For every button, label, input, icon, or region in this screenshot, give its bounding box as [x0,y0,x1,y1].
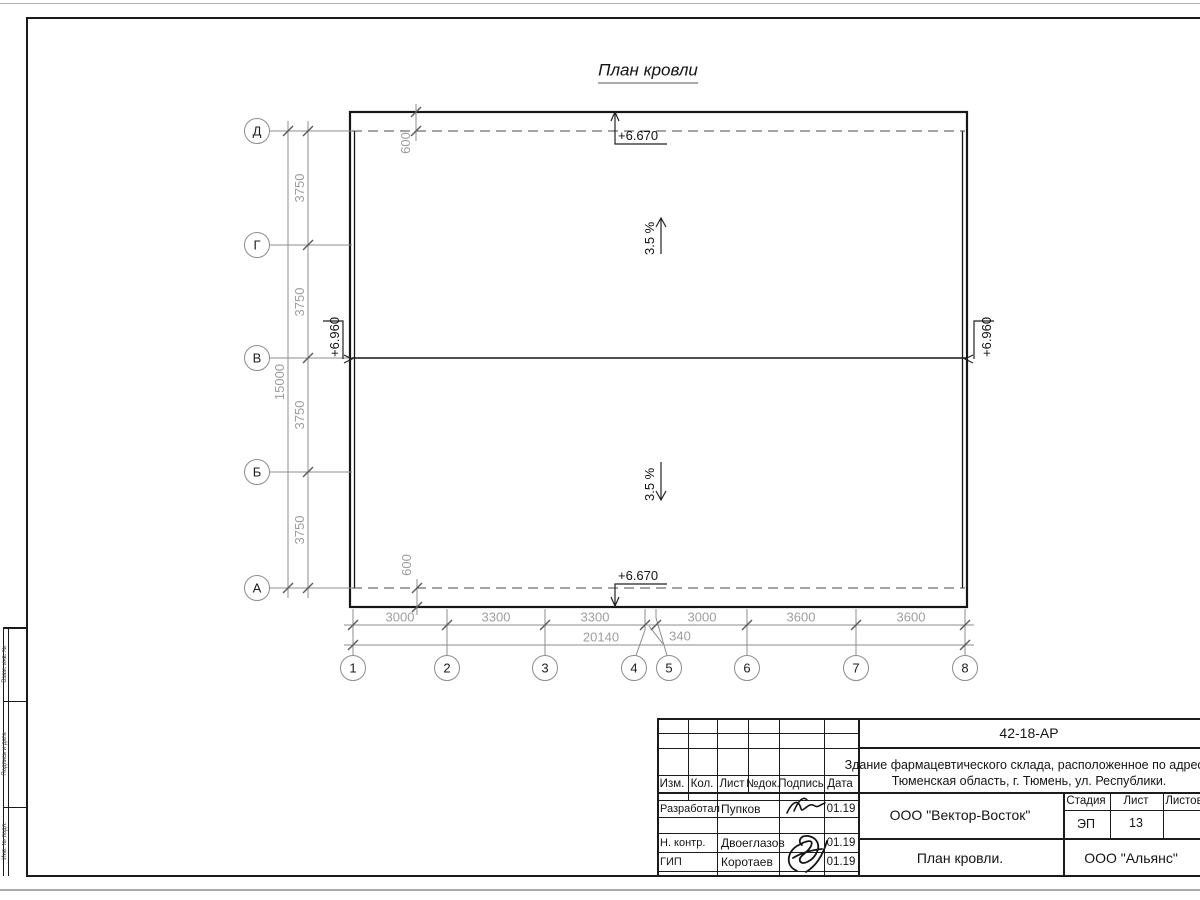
tb-row-line-e [657,817,858,818]
axis-labels-left: Д Г В Б А [253,124,262,596]
dimension-texts: 3750 3750 3750 3750 15000 600 600 3000 3… [272,132,925,644]
tb-row-line-d [657,800,858,801]
slope-label-upper: 3.5 % [642,221,657,255]
tb-name-dvoeglazov: Двоеглазов [721,836,785,850]
tb-date-gip: 01.19 [827,856,856,868]
tb-org-divider [1063,792,1065,877]
tb-role-razrabotal: Разработал [660,803,720,815]
tb-top-border [657,718,1200,720]
axis-label-4: 4 [630,661,637,676]
slope-label-lower: 3.5 % [642,467,657,501]
dim-3300-1: 3300 [482,610,511,625]
dim-3600-2: 3600 [897,610,926,625]
tb-sheet-title: План кровли. [917,850,1003,866]
dim-3750-3: 3750 [292,401,307,430]
tb-row-line-f [657,833,858,834]
axis-circles-bottom [341,656,978,681]
axis-label-a: А [253,581,262,596]
tb-stage-line-2 [1163,792,1164,838]
axis-dashed-lines [352,131,965,588]
elev-eaves-top: +6.670 [618,128,658,143]
dim-20140: 20140 [583,630,619,645]
roof-outline [350,112,967,607]
axis-label-7: 7 [852,661,859,676]
tb-col-izm: Изм. [660,778,685,790]
dim-3750-1: 3750 [292,174,307,203]
tb-code-divider [858,747,1200,749]
tb-col-line-1 [688,718,689,800]
tb-title-divider [858,838,1200,840]
elev-ridge-right: +6.960 [979,317,994,357]
tb-main-divider [858,718,860,877]
tb-name-korotaev: Коротаев [721,855,773,869]
dim-3000-2: 3000 [688,610,717,625]
elev-eaves-bottom: +6.670 [618,568,658,583]
tb-sheet-label: Лист [1124,795,1149,807]
tb-name-pupkov: Пупков [721,802,761,816]
dim-15000: 15000 [272,364,287,400]
axis-label-5: 5 [665,661,672,676]
axis-label-2: 2 [443,661,450,676]
tb-document-code: 42-18-АР [999,725,1058,741]
dim-3300-2: 3300 [581,610,610,625]
signatures [787,798,827,872]
axis-label-1: 1 [349,661,356,676]
tb-sheets-label: Листов [1165,795,1200,807]
slope-arrows [656,218,666,500]
elev-ridge-left: +6.960 [327,317,342,357]
tb-role-gip: ГИП [660,856,682,868]
signature-nkontr-gip [789,836,827,872]
tb-row-line-g [657,852,858,853]
tb-row-line-c [657,775,858,776]
tb-stage-label: Стадия [1066,795,1105,807]
tb-designer-org: ООО "Вектор-Восток" [890,807,1031,823]
dim-3600-1: 3600 [787,610,816,625]
axis-label-b: Б [253,465,262,480]
axis-label-8: 8 [961,661,968,676]
tb-row-line-a [657,733,858,734]
tb-stage-value: ЭП [1077,817,1095,831]
axis-label-g: Г [253,238,260,253]
elevation-texts: +6.670 +6.670 +6.960 +6.960 [327,128,994,583]
elevation-marks [323,112,994,606]
dim-600-top: 600 [398,132,413,154]
axis-label-v: В [253,351,262,366]
tb-col-kol: Кол. [691,778,714,790]
tb-col-sign: Подпись [778,778,824,790]
dim-3750-2: 3750 [292,288,307,317]
axis-label-3: 3 [541,661,548,676]
tb-date-nkontr: 01.19 [827,837,856,849]
tb-left-border [657,718,659,877]
dim-340: 340 [669,629,691,644]
tb-stage-line-1 [1110,792,1111,838]
tb-row-line-b [657,748,858,749]
axis-label-6: 6 [743,661,750,676]
dim-3000-1: 3000 [386,610,415,625]
tb-project-line1: Здание фармацевтического склада, располо… [845,758,1200,772]
tb-project-line2: Тюменская область, г. Тюмень, ул. Респуб… [892,774,1167,788]
tb-date-razrabotal: 01.19 [827,803,856,815]
tb-col-date: Дата [827,778,852,790]
tb-col-doc: №док. [746,778,780,790]
tb-client-org: ООО "Альянс" [1084,850,1178,866]
tb-row-line-header [657,792,1200,794]
tb-stage-header-line [1063,810,1200,811]
tb-sheet-value: 13 [1129,816,1143,830]
tb-col-list: Лист [720,778,745,790]
dim-3750-4: 3750 [292,516,307,545]
dim-600-bottom: 600 [399,554,414,576]
axis-label-d: Д [253,124,262,139]
drawing-sheet: Взам. инв. № Подпись и дата Инв. № подл.… [0,0,1200,900]
tb-row-line-h [657,871,858,872]
tb-role-nkontr: Н. контр. [660,837,705,849]
